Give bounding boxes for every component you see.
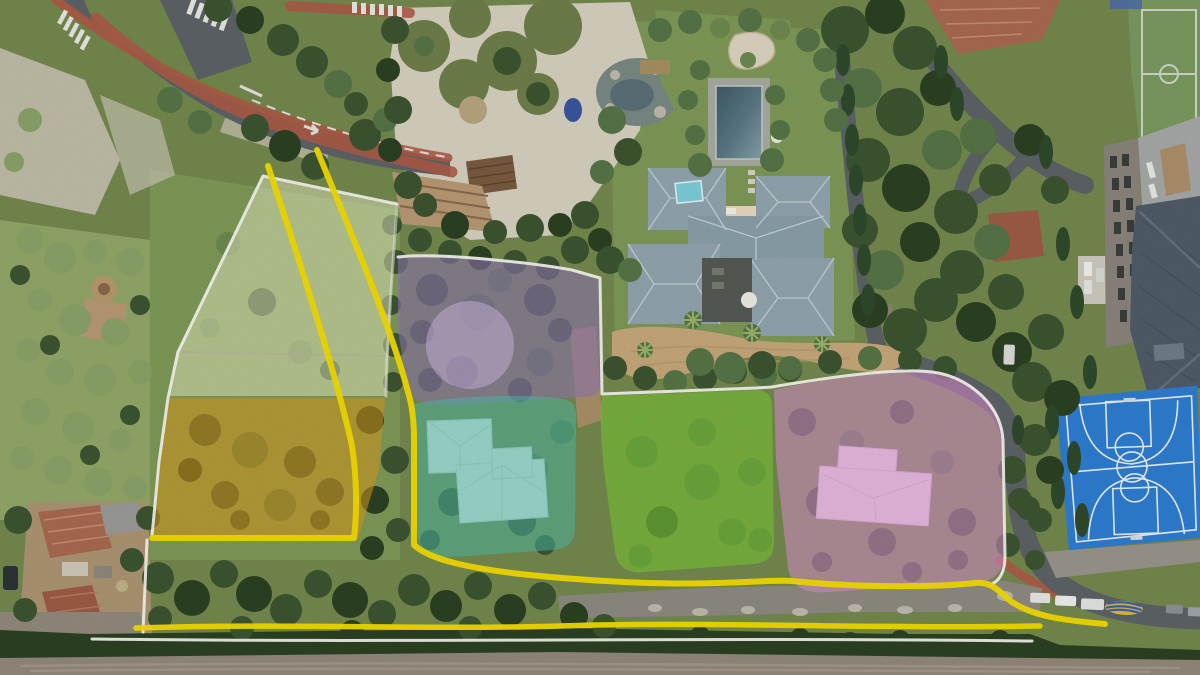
aerial-photo xyxy=(0,0,1200,675)
aerial-photo-canvas xyxy=(0,0,1200,675)
photo-grain xyxy=(0,0,1200,675)
